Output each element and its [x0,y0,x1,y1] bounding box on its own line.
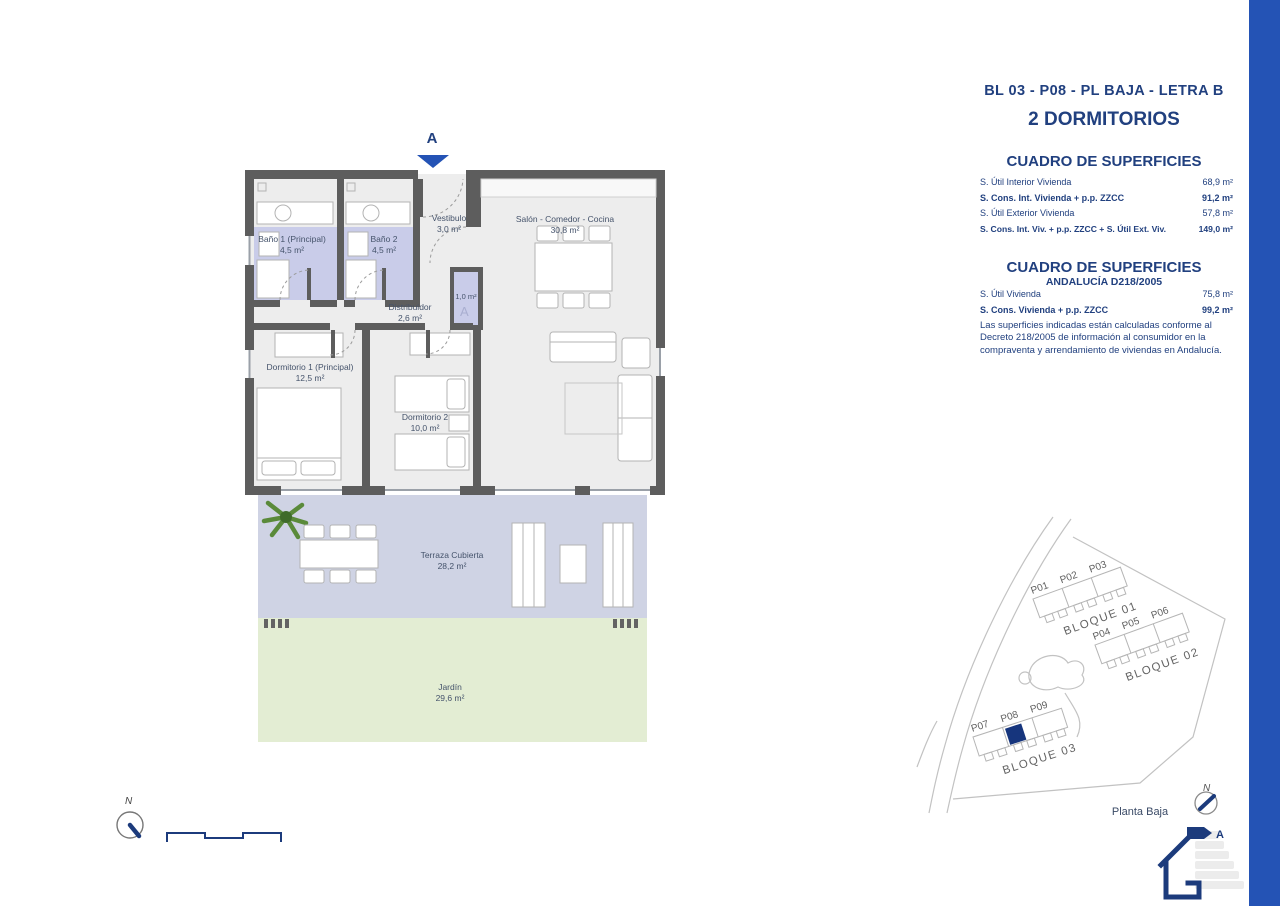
table-row: S. Útil Exterior Vivienda 57,8 m² [980,208,1233,224]
row-value: 57,8 m² [1202,208,1233,218]
energy-house-icon: A [1155,815,1250,905]
house-outline [1161,837,1199,897]
garden-label: Jardín 29,6 m² [400,682,500,703]
table-row: S. Útil Vivienda 75,8 m² [980,289,1233,305]
wardrobe-icon: A [460,304,469,319]
room-label-bano1: Baño 1 (Principal) 4,5 m² [247,234,337,255]
site-block-1: P01 P02 P03 BLOQUE 01 [1029,554,1140,644]
table-row: S. Cons. Int. Vivienda + p.p. ZZCC 91,2 … [980,193,1233,209]
room-label-dormitorio1: Dormitorio 1 (Principal) 12,5 m² [250,362,370,383]
row-value: 99,2 m² [1202,305,1233,315]
surfaces-table-heading: CUADRO DE SUPERFICIES [954,153,1254,170]
row-value: 75,8 m² [1202,289,1233,299]
blue-sidebar [1249,0,1280,906]
rating-letter: A [1216,829,1224,841]
page-title: BL 03 - P08 - PL BAJA - LETRA B [954,83,1254,99]
row-label: S. Útil Interior Vivienda [980,177,1071,187]
terrace-label: Terraza Cubierta 28,2 m² [392,550,512,571]
block-label: BLOQUE 03 [1001,742,1078,777]
table-row: S. Cons. Vivienda + p.p. ZZCC 99,2 m² [980,305,1233,321]
table-row: S. Cons. Int. Viv. + p.p. ZZCC + S. Útil… [980,224,1233,240]
legal-note: Las superficies indicadas están calculad… [980,320,1235,357]
section-line [160,825,290,847]
page-subtitle: 2 DORMITORIOS [954,109,1254,131]
surfaces-table2-heading: CUADRO DE SUPERFICIES [954,259,1254,276]
row-value: 91,2 m² [1202,193,1233,203]
room-label-salon: Salón - Comedor - Cocina 30,8 m² [495,214,635,235]
garden [258,618,647,742]
site-compass-icon: N [1195,783,1217,814]
section-marker-label: A [420,130,444,147]
floorplan-sheet: BL 03 - P08 - PL BAJA - LETRA B 2 DORMIT… [0,0,1280,906]
table-row: S. Útil Interior Vivienda 68,9 m² [980,177,1233,193]
section-marker-arrow-icon [416,154,450,169]
row-label: S. Cons. Int. Viv. + p.p. ZZCC + S. Útil… [980,224,1166,234]
compass-icon: N [105,790,165,850]
site-block-3: P07 P08 P09 BLOQUE 03 [969,695,1079,783]
room-label-dormitorio2: Dormitorio 2 10,0 m² [375,412,475,433]
row-label: S. Útil Vivienda [980,289,1041,299]
surfaces-table2-subheading: ANDALUCÍA D218/2005 [954,276,1254,288]
row-label: S. Cons. Int. Vivienda + p.p. ZZCC [980,193,1124,203]
row-value: 149,0 m² [1199,224,1233,234]
surfaces-table: S. Útil Interior Vivienda 68,9 m² S. Con… [980,177,1233,239]
row-value: 68,9 m² [1202,177,1233,187]
room-label-vestibulo: Vestibulo 3,0 m² [414,213,484,234]
surfaces-table2: S. Útil Vivienda 75,8 m² S. Cons. Vivien… [980,289,1233,320]
room-label-distribuidor: Distribuidor 2,6 m² [370,302,450,323]
site-plan: P01 P02 P03 BLOQUE 01 P04 P05 P06 BLOQUE… [915,515,1235,815]
kitchen-counter [481,179,656,197]
row-label: S. Útil Exterior Vivienda [980,208,1074,218]
closet-area-label: 1,0 m² [446,292,486,303]
svg-text:N: N [125,796,133,807]
room-label-bano2: Baño 2 4,5 m² [344,234,424,255]
row-label: S. Cons. Vivienda + p.p. ZZCC [980,305,1108,315]
